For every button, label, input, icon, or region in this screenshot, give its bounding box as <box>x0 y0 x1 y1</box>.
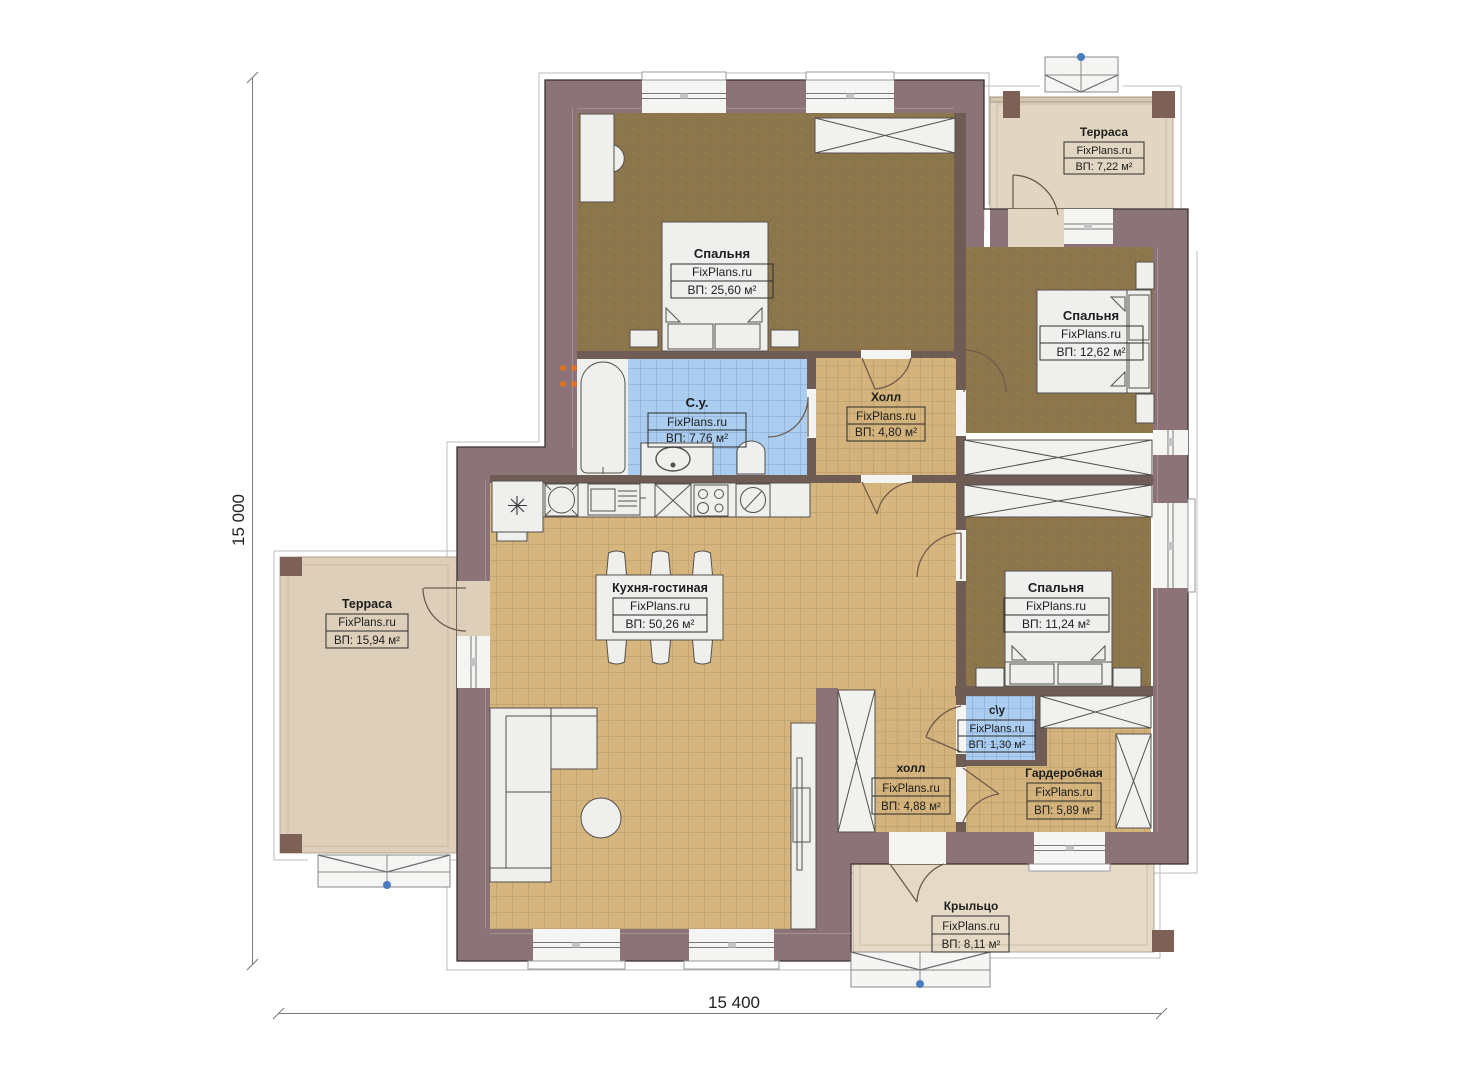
svg-text:холл: холл <box>897 761 926 775</box>
svg-text:ВП: 15,94 м²: ВП: 15,94 м² <box>334 635 400 647</box>
svg-text:FixPlans.ru: FixPlans.ru <box>692 265 752 279</box>
svg-text:Холл: Холл <box>871 390 901 404</box>
svg-text:ВП: 25,60 м²: ВП: 25,60 м² <box>688 283 757 297</box>
svg-text:c\у: c\у <box>989 705 1006 717</box>
svg-text:FixPlans.ru: FixPlans.ru <box>1026 599 1086 613</box>
svg-text:Терраса: Терраса <box>1080 125 1129 139</box>
svg-text:Гардеробная: Гардеробная <box>1025 766 1103 780</box>
svg-text:ВП: 1,30 м²: ВП: 1,30 м² <box>968 739 1025 751</box>
svg-text:FixPlans.ru: FixPlans.ru <box>942 921 1000 933</box>
svg-text:ВП: 12,62 м²: ВП: 12,62 м² <box>1057 345 1126 359</box>
svg-text:FixPlans.ru: FixPlans.ru <box>667 415 727 429</box>
svg-text:FixPlans.ru: FixPlans.ru <box>882 783 940 795</box>
svg-text:ВП: 7,76 м²: ВП: 7,76 м² <box>666 431 728 445</box>
svg-text:Спальня: Спальня <box>694 246 750 261</box>
svg-text:FixPlans.ru: FixPlans.ru <box>338 617 396 629</box>
svg-text:15 400: 15 400 <box>708 993 760 1012</box>
svg-text:FixPlans.ru: FixPlans.ru <box>1035 787 1093 799</box>
svg-text:ВП: 50,26 м²: ВП: 50,26 м² <box>626 617 695 631</box>
svg-text:FixPlans.ru: FixPlans.ru <box>969 723 1024 735</box>
svg-text:ВП: 7,22 м²: ВП: 7,22 м² <box>1075 161 1132 173</box>
svg-text:Крыльцо: Крыльцо <box>944 899 999 913</box>
svg-text:Спальня: Спальня <box>1028 580 1084 595</box>
svg-text:FixPlans.ru: FixPlans.ru <box>630 599 690 613</box>
svg-text:Кухня-гостиная: Кухня-гостиная <box>612 581 708 595</box>
svg-text:15 000: 15 000 <box>229 494 248 546</box>
svg-text:FixPlans.ru: FixPlans.ru <box>1061 327 1121 341</box>
svg-text:ВП: 8,11 м²: ВП: 8,11 м² <box>942 939 1001 951</box>
svg-text:Спальня: Спальня <box>1063 308 1119 323</box>
svg-text:ВП: 5,89 м²: ВП: 5,89 м² <box>1034 805 1094 817</box>
svg-text:Терраса: Терраса <box>342 597 393 611</box>
svg-text:ВП: 11,24 м²: ВП: 11,24 м² <box>1022 617 1090 631</box>
svg-text:С.у.: С.у. <box>686 395 709 410</box>
svg-text:FixPlans.ru: FixPlans.ru <box>856 409 916 423</box>
svg-text:FixPlans.ru: FixPlans.ru <box>1076 145 1131 157</box>
svg-text:ВП: 4,88 м²: ВП: 4,88 м² <box>881 801 941 813</box>
svg-text:ВП: 4,80 м²: ВП: 4,80 м² <box>855 425 917 439</box>
